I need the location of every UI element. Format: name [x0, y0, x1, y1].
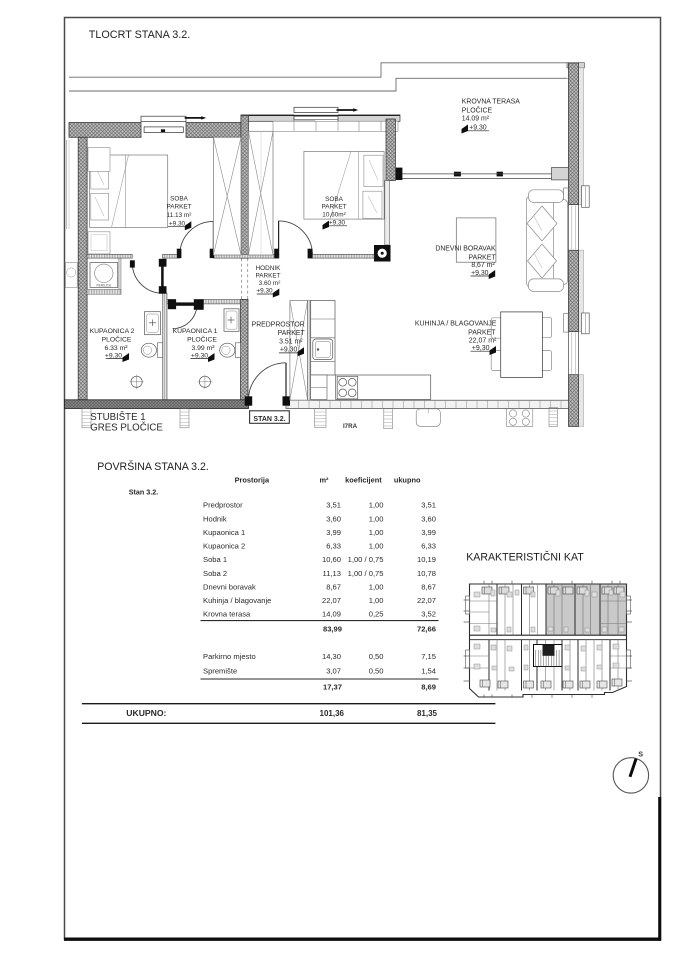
svg-text:PLOČICE: PLOČICE: [462, 106, 493, 115]
svg-text:3.51 m²: 3.51 m²: [279, 338, 303, 345]
svg-text:3,51: 3,51: [326, 501, 341, 510]
svg-text:Kuhinja / blagovanje: Kuhinja / blagovanje: [203, 596, 271, 605]
svg-text:Dnevni boravak: Dnevni boravak: [203, 582, 256, 591]
svg-text:8,67: 8,67: [421, 582, 436, 591]
svg-text:+9.30: +9.30: [469, 124, 487, 131]
svg-text:3,60: 3,60: [421, 514, 436, 523]
svg-text:Soba 2: Soba 2: [203, 569, 227, 578]
svg-text:14,09: 14,09: [322, 610, 341, 619]
svg-text:14,30: 14,30: [322, 652, 341, 661]
svg-text:22,07 m²: 22,07 m²: [469, 338, 497, 345]
svg-text:Hodnik: Hodnik: [203, 514, 227, 523]
svg-text:3,52: 3,52: [421, 610, 436, 619]
svg-text:KUPAONICA 2: KUPAONICA 2: [90, 328, 135, 335]
svg-text:3,60: 3,60: [326, 514, 341, 523]
svg-text:PARKET: PARKET: [468, 329, 496, 336]
svg-text:HODNIK: HODNIK: [256, 265, 282, 272]
svg-text:6.33 m²: 6.33 m²: [104, 345, 128, 352]
svg-text:PERILICA: PERILICA: [97, 283, 112, 287]
svg-text:GRES PLOČICE: GRES PLOČICE: [90, 423, 163, 434]
svg-text:81,35: 81,35: [417, 709, 438, 718]
svg-text:83,99: 83,99: [323, 624, 342, 633]
svg-text:Predprostor: Predprostor: [203, 501, 243, 510]
svg-text:6,33: 6,33: [326, 542, 341, 551]
svg-text:10,60: 10,60: [322, 555, 341, 564]
svg-text:KARAKTERISTIČNI KAT: KARAKTERISTIČNI KAT: [466, 551, 584, 564]
svg-text:S: S: [638, 750, 643, 759]
svg-text:1,00: 1,00: [369, 596, 384, 605]
svg-text:17,37: 17,37: [323, 682, 342, 691]
svg-text:1,00 / 0,75: 1,00 / 0,75: [348, 569, 384, 578]
svg-text:6,33: 6,33: [421, 542, 436, 551]
svg-text:Prostorija: Prostorija: [235, 476, 270, 485]
svg-text:1,00: 1,00: [369, 501, 384, 510]
svg-text:SOBA: SOBA: [325, 196, 343, 203]
svg-text:8,67: 8,67: [326, 582, 341, 591]
svg-text:PARKET: PARKET: [321, 204, 346, 211]
svg-text:UKUPNO:: UKUPNO:: [126, 708, 166, 718]
svg-text:KROVNA TERASA: KROVNA TERASA: [462, 98, 520, 105]
svg-text:PLOČICE: PLOČICE: [102, 334, 132, 343]
svg-text:10,60m²: 10,60m²: [322, 212, 345, 219]
svg-text:Kupaonica 2: Kupaonica 2: [203, 542, 245, 551]
svg-text:3,99: 3,99: [326, 528, 341, 537]
svg-text:0,25: 0,25: [369, 610, 384, 619]
svg-text:3,99: 3,99: [421, 528, 436, 537]
svg-text:1,54: 1,54: [421, 666, 436, 675]
svg-text:DNEVNI BORAVAK: DNEVNI BORAVAK: [435, 246, 496, 253]
svg-text:3.60 m²: 3.60 m²: [259, 280, 281, 287]
svg-text:10,78: 10,78: [417, 569, 436, 578]
svg-text:10,19: 10,19: [417, 555, 436, 564]
svg-text:PARKET: PARKET: [255, 273, 280, 280]
svg-text:Soba 1: Soba 1: [203, 555, 227, 564]
svg-text:PREDPROSTOR: PREDPROSTOR: [252, 322, 305, 329]
svg-text:PLOČICE: PLOČICE: [187, 334, 217, 343]
svg-text:Krovna terasa: Krovna terasa: [203, 610, 251, 619]
svg-text:3.99 m²: 3.99 m²: [191, 345, 215, 352]
svg-text:22,07: 22,07: [322, 596, 341, 605]
svg-text:1,00: 1,00: [369, 528, 384, 537]
svg-text:0,50: 0,50: [369, 652, 384, 661]
svg-text:0,50: 0,50: [369, 666, 384, 675]
svg-text:11.13 m²: 11.13 m²: [167, 212, 192, 219]
svg-text:22,07: 22,07: [417, 596, 436, 605]
svg-text:POVRŠINA STANA 3.2.: POVRŠINA STANA 3.2.: [97, 460, 209, 473]
svg-text:8,67 m²: 8,67 m²: [471, 262, 495, 269]
svg-text:1,00: 1,00: [369, 542, 384, 551]
svg-text:TLOCRT STANA 3.2.: TLOCRT STANA 3.2.: [89, 29, 190, 41]
svg-text:1,00 / 0,75: 1,00 / 0,75: [348, 555, 384, 564]
svg-text:Stan 3.2.: Stan 3.2.: [129, 487, 159, 496]
svg-text:Kupaonica 1: Kupaonica 1: [203, 528, 245, 537]
svg-text:Parkirno mjesto: Parkirno mjesto: [203, 652, 256, 661]
svg-text:PARKET: PARKET: [278, 330, 306, 337]
svg-text:8,69: 8,69: [421, 682, 436, 691]
svg-text:koeficijent: koeficijent: [345, 476, 382, 485]
svg-text:I7RA: I7RA: [343, 423, 358, 430]
svg-text:72,66: 72,66: [417, 624, 436, 633]
svg-text:14.09 m²: 14.09 m²: [462, 116, 490, 123]
svg-text:SOBA: SOBA: [170, 196, 188, 203]
svg-text:7,15: 7,15: [421, 652, 436, 661]
svg-text:KUHINJA / BLAGOVANJE: KUHINJA / BLAGOVANJE: [415, 321, 497, 328]
svg-text:1,00: 1,00: [369, 582, 384, 591]
svg-text:PARKET: PARKET: [166, 203, 191, 210]
svg-text:Spremište: Spremište: [203, 666, 237, 675]
svg-text:3,07: 3,07: [326, 666, 341, 675]
svg-text:KUPAONICA 1: KUPAONICA 1: [173, 328, 218, 335]
svg-text:1,00: 1,00: [369, 514, 384, 523]
svg-text:3,51: 3,51: [421, 501, 436, 510]
svg-text:STUBIŠTE 1: STUBIŠTE 1: [90, 412, 145, 423]
svg-text:101,36: 101,36: [320, 709, 345, 718]
svg-text:PARKET: PARKET: [469, 254, 497, 261]
svg-text:m²: m²: [319, 476, 329, 485]
svg-text:11,13: 11,13: [323, 569, 341, 578]
svg-text:ukupno: ukupno: [394, 476, 421, 485]
svg-text:STAN 3.2.: STAN 3.2.: [253, 416, 285, 423]
